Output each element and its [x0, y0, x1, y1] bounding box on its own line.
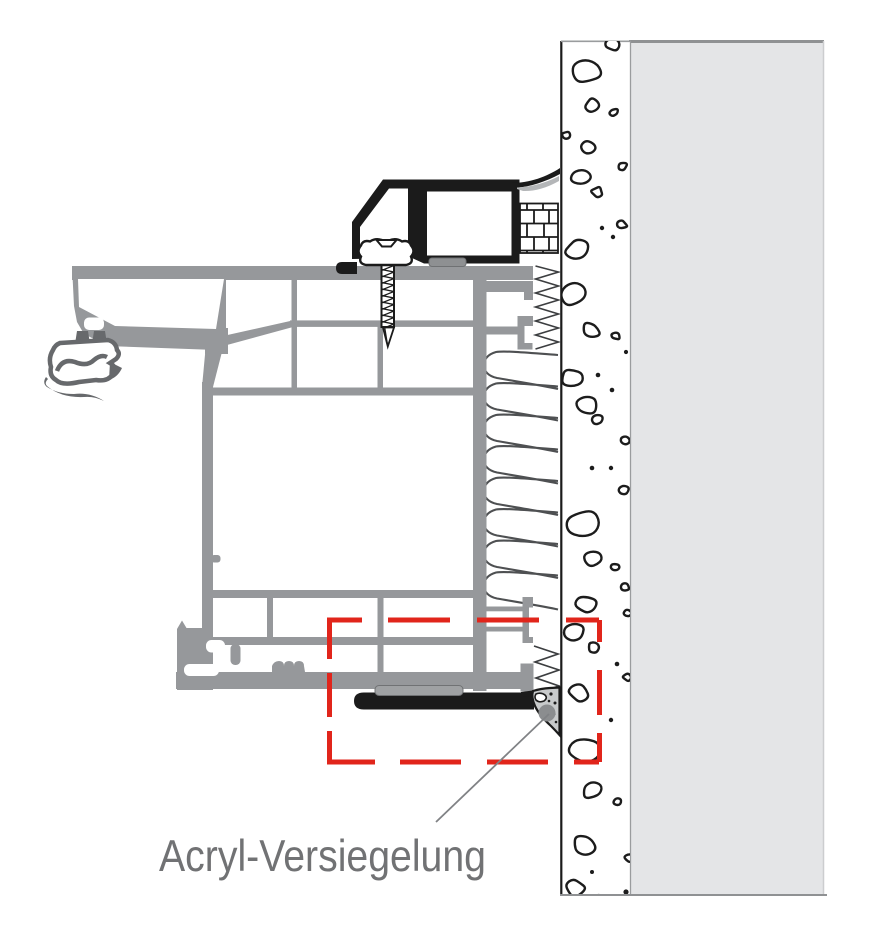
svg-text:Acryl-Versiegelung: Acryl-Versiegelung [159, 832, 486, 881]
